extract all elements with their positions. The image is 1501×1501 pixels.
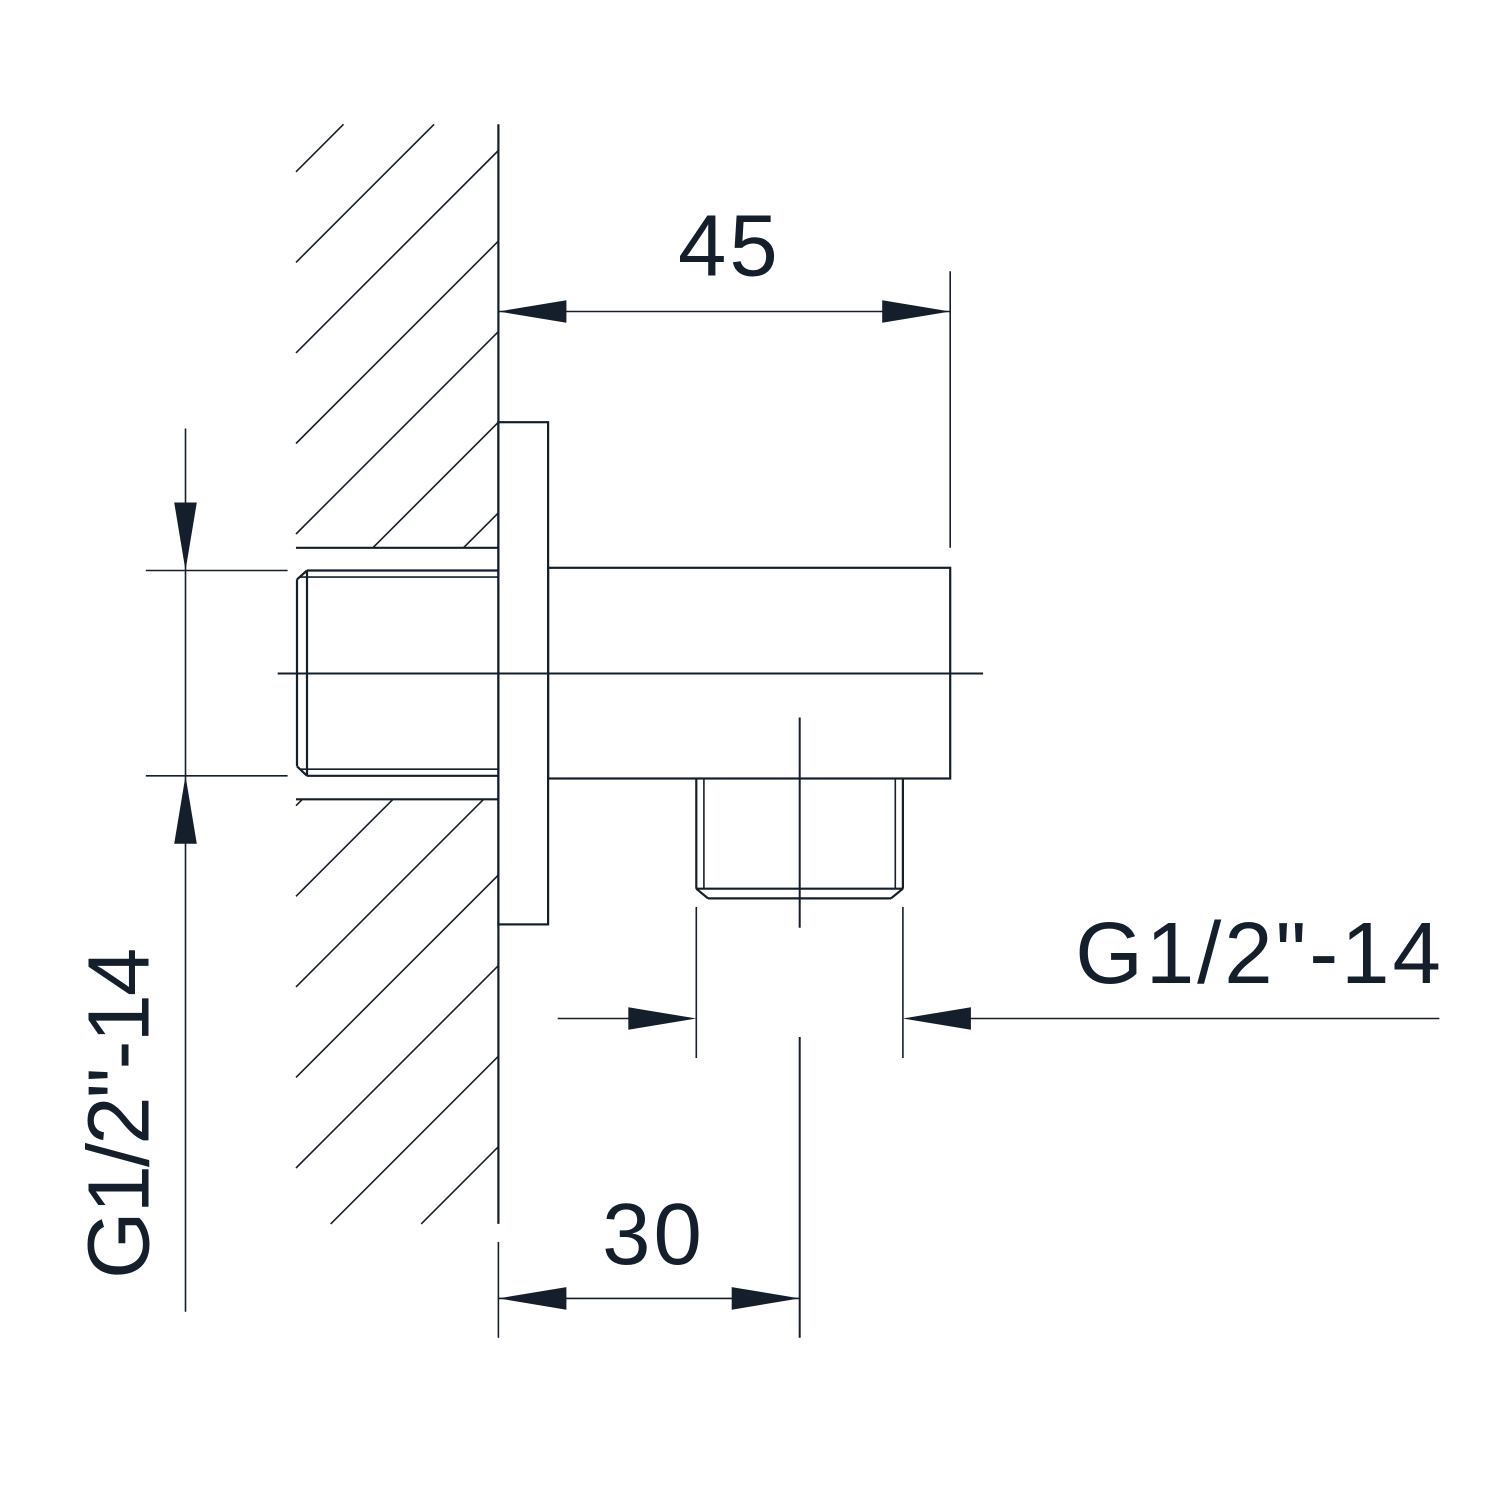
svg-text:G1/2"-14: G1/2"-14 <box>71 950 168 1279</box>
svg-text:30: 30 <box>602 1186 705 1283</box>
svg-text:G1/2"-14: G1/2"-14 <box>1075 905 1443 1002</box>
svg-text:45: 45 <box>678 198 781 295</box>
